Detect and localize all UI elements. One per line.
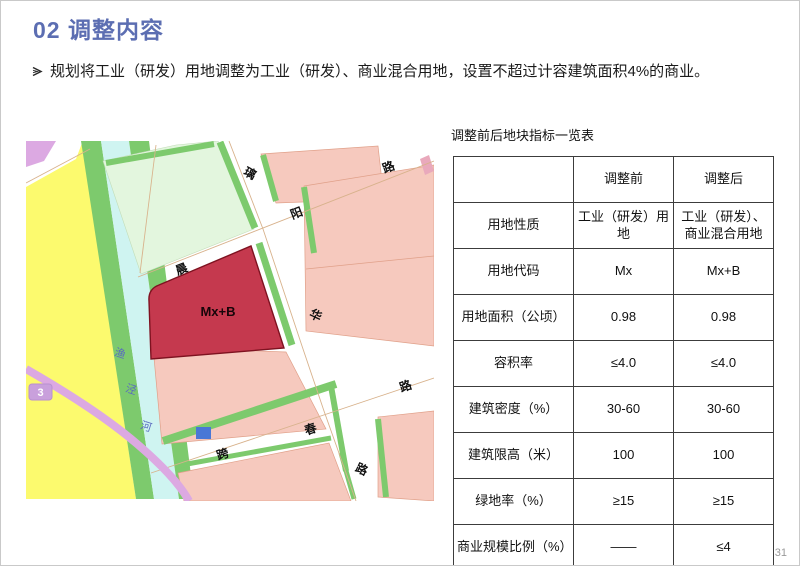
purple-corner-parcel <box>26 141 56 167</box>
table-row: 用地性质工业（研发）用地工业（研发）、商业混合用地 <box>454 203 774 249</box>
table-row: 容积率≤4.0≤4.0 <box>454 341 774 387</box>
row-label: 建筑限高（米） <box>454 433 574 479</box>
value-after: 30-60 <box>674 387 774 433</box>
row-label: 用地性质 <box>454 203 574 249</box>
value-after: ≥15 <box>674 479 774 525</box>
bullet-arrow-icon <box>31 65 44 78</box>
road-name-label: 阳 <box>288 204 305 222</box>
header-empty <box>454 157 574 203</box>
page-number: 31 <box>775 547 787 559</box>
value-before: —— <box>574 525 674 566</box>
value-after: ≤4.0 <box>674 341 774 387</box>
value-after: 100 <box>674 433 774 479</box>
table-row: 建筑密度（%）30-6030-60 <box>454 387 774 433</box>
route-badge: 3 <box>29 384 52 400</box>
value-before: 0.98 <box>574 295 674 341</box>
value-before: 100 <box>574 433 674 479</box>
value-before: 工业（研发）用地 <box>574 203 674 249</box>
landuse-map-svg: Mx+B 3 璃路阳晨华路春跨路 渔泾河 <box>26 141 434 501</box>
table-header-row: 调整前 调整后 <box>454 157 774 203</box>
row-label: 建筑密度（%） <box>454 387 574 433</box>
page-title: 02 调整内容 <box>33 11 164 45</box>
header-after: 调整后 <box>674 157 774 203</box>
bullet-line: 规划将工业（研发）用地调整为工业（研发）、商业混合用地，设置不超过计容建筑面积4… <box>31 62 776 82</box>
row-label: 容积率 <box>454 341 574 387</box>
value-before: 30-60 <box>574 387 674 433</box>
value-after: 0.98 <box>674 295 774 341</box>
row-label: 绿地率（%） <box>454 479 574 525</box>
bullet-text: 规划将工业（研发）用地调整为工业（研发）、商业混合用地，设置不超过计容建筑面积4… <box>50 62 709 82</box>
table-row: 商业规模比例（%）——≤4 <box>454 525 774 566</box>
row-label: 用地代码 <box>454 249 574 295</box>
table-title: 调整前后地块指标一览表 <box>451 125 594 144</box>
indicator-table: 调整前 调整后 用地性质工业（研发）用地工业（研发）、商业混合用地用地代码MxM… <box>453 156 774 566</box>
value-before: ≥15 <box>574 479 674 525</box>
pink-parcel-east <box>304 165 434 346</box>
value-after: 工业（研发）、商业混合用地 <box>674 203 774 249</box>
row-label: 用地面积（公顷） <box>454 295 574 341</box>
route-badge-label: 3 <box>37 387 43 399</box>
landuse-map: Mx+B 3 璃路阳晨华路春跨路 渔泾河 <box>26 141 434 501</box>
table-row: 用地面积（公顷）0.980.98 <box>454 295 774 341</box>
value-after: Mx+B <box>674 249 774 295</box>
row-label: 商业规模比例（%） <box>454 525 574 566</box>
value-before: Mx <box>574 249 674 295</box>
table-row: 绿地率（%）≥15≥15 <box>454 479 774 525</box>
value-before: ≤4.0 <box>574 341 674 387</box>
table-row: 用地代码MxMx+B <box>454 249 774 295</box>
header-before: 调整前 <box>574 157 674 203</box>
blue-parcel <box>196 427 211 439</box>
value-after: ≤4 <box>674 525 774 566</box>
table-row: 建筑限高（米）100100 <box>454 433 774 479</box>
parcel-mxb-label: Mx+B <box>200 304 235 319</box>
road-name-label: 路 <box>353 460 371 479</box>
slide: 02 调整内容 规划将工业（研发）用地调整为工业（研发）、商业混合用地，设置不超… <box>0 0 800 566</box>
